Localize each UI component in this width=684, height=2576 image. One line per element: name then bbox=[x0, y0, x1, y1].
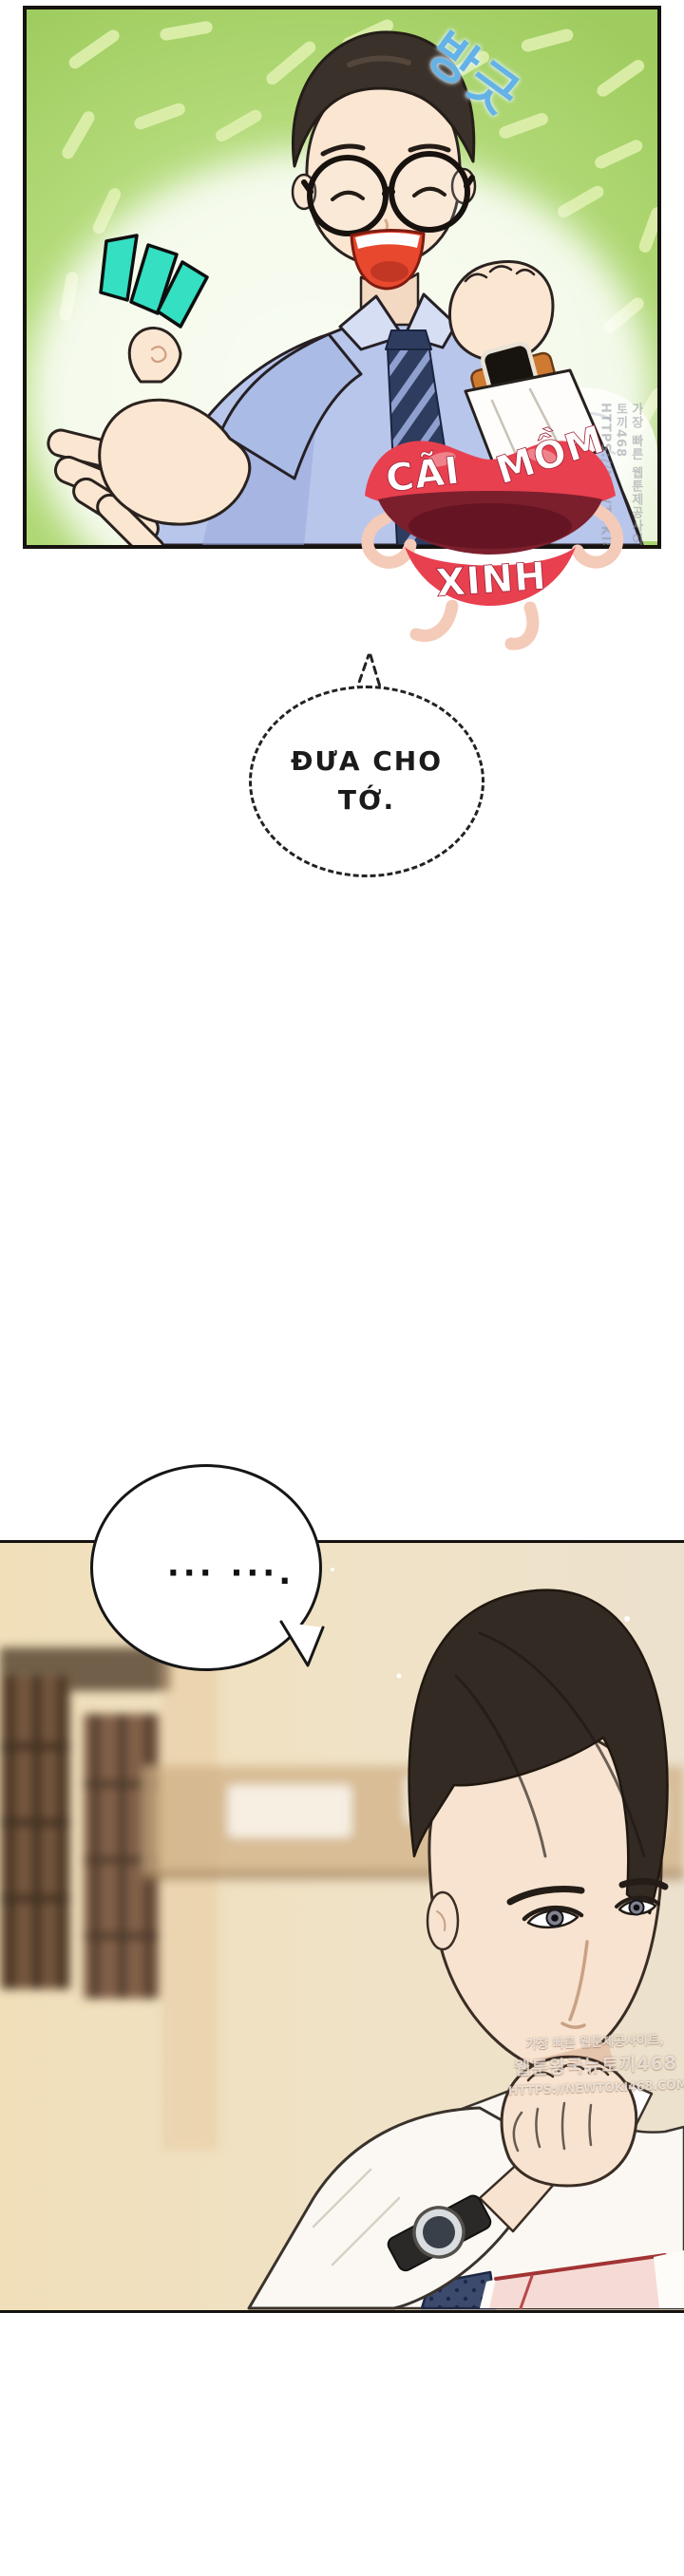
watermark-block: 가장 빠른 웹툰제공사이트, 웹툰왕국뉴토끼468 HTTPS://NEWTOK… bbox=[506, 2031, 684, 2100]
ear bbox=[427, 1892, 458, 1949]
bubble-ellipsis-tail bbox=[274, 1616, 331, 1673]
bubble-dashed-line2: TỚ. bbox=[338, 784, 395, 816]
tie-knot bbox=[386, 330, 431, 349]
mouth-inner bbox=[408, 503, 572, 549]
panel-bottom bbox=[0, 1540, 684, 2313]
bubble-dashed-text: ĐƯA CHO TỚ. bbox=[291, 743, 443, 819]
logo-leg-right bbox=[511, 608, 533, 644]
logo-leg-left bbox=[416, 606, 452, 636]
logo-word-xinh: XINH bbox=[434, 555, 548, 606]
bubble-dashed-line1: ĐƯA CHO bbox=[291, 745, 443, 777]
translator-lips-logo: CÃI MỒM XINH bbox=[350, 404, 631, 640]
raised-fist bbox=[449, 261, 553, 361]
lips-logo-art: CÃI MỒM XINH bbox=[350, 404, 631, 640]
comic-page: 방긋 가장 빠른 웹툰제공사이트, 웹툰왕국뉴토끼468 HTTPS://NEW… bbox=[0, 0, 684, 2576]
panel-bottom-art bbox=[0, 1543, 684, 2310]
thumb bbox=[129, 328, 180, 382]
watermark-v-line1: 가장 빠른 웹툰제공사이트, bbox=[629, 403, 643, 549]
speech-bubble-dashed: ĐƯA CHO TỚ. bbox=[249, 686, 484, 877]
bubble-ellipsis-text: ··· ···. bbox=[167, 1554, 294, 1592]
